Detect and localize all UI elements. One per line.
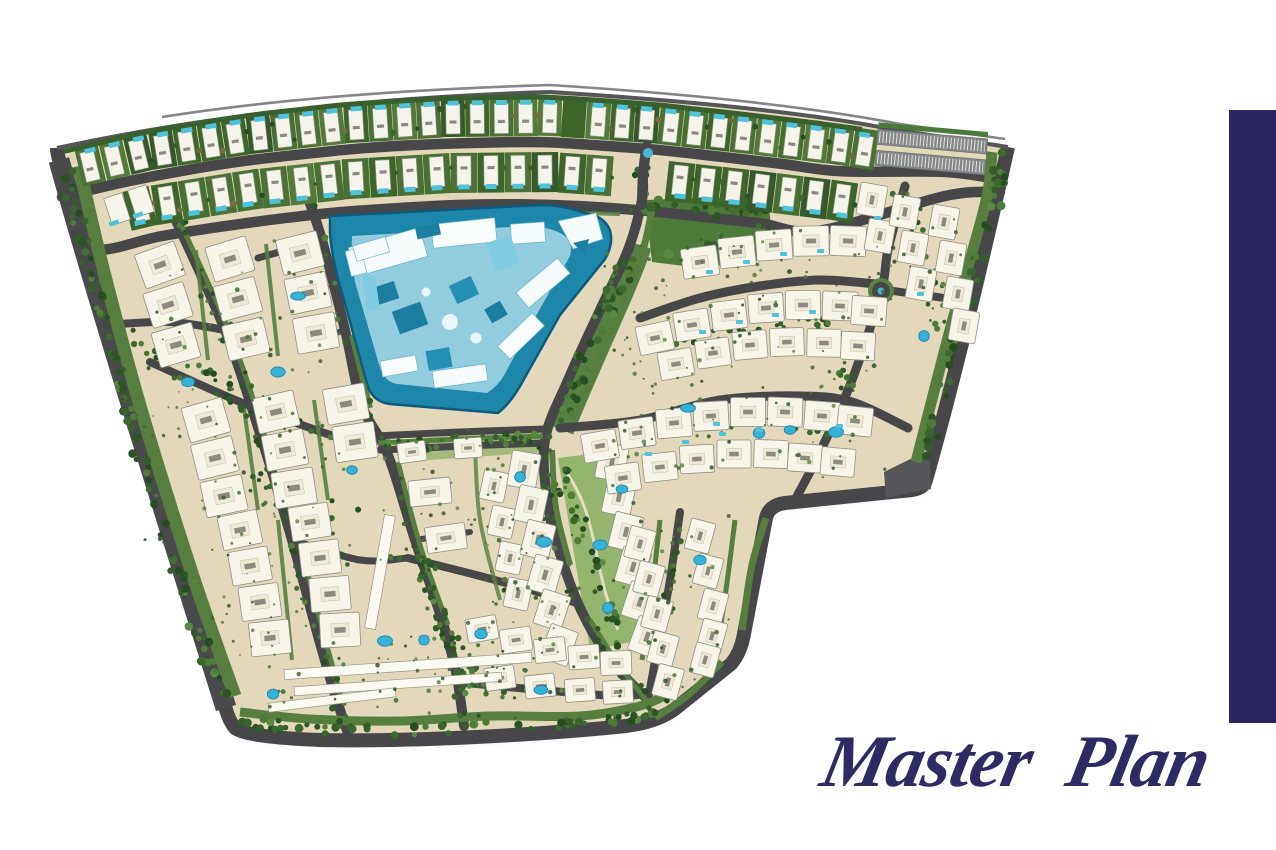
svg-text:Master Plan: Master Plan — [813, 721, 1217, 803]
